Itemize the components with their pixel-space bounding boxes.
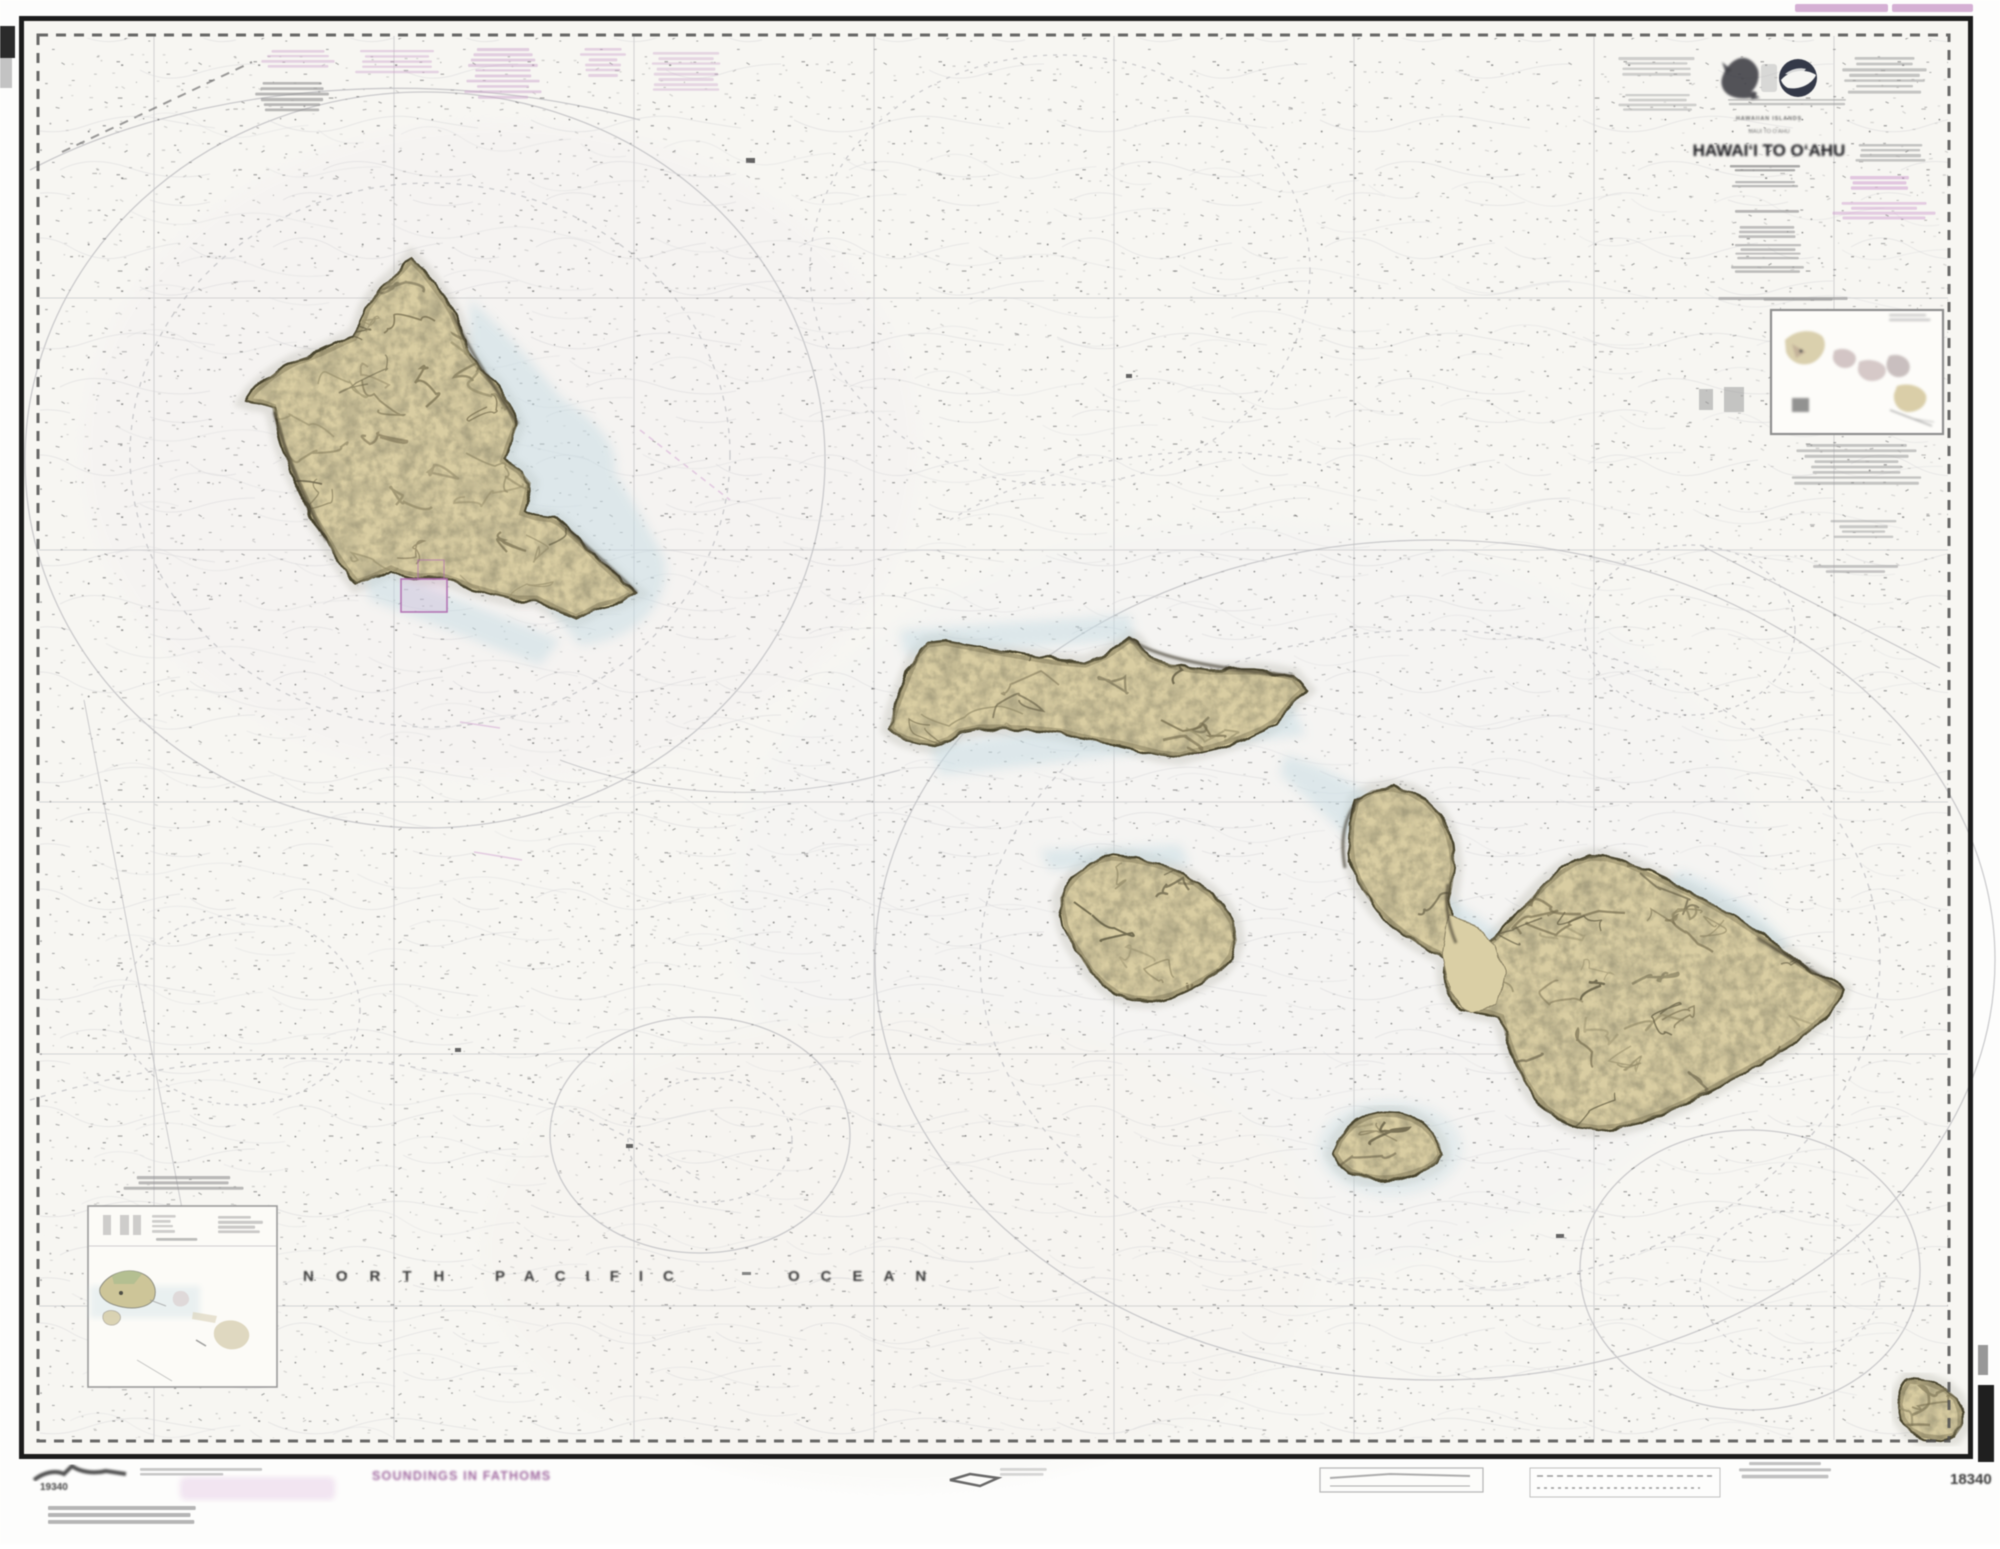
svg-text:MAUI TO O‘AHU: MAUI TO O‘AHU	[1748, 129, 1789, 135]
svg-text:HAWAIIAN ISLANDS: HAWAIIAN ISLANDS	[1736, 116, 1802, 122]
svg-text:OCEAN: OCEAN	[788, 1268, 947, 1285]
svg-text:19340: 19340	[40, 1482, 68, 1493]
svg-text:PACIFIC: PACIFIC	[495, 1268, 694, 1285]
svg-text:NORTH: NORTH	[303, 1268, 466, 1285]
svg-text:HAWAI‘I TO O‘AHU: HAWAI‘I TO O‘AHU	[1693, 141, 1846, 160]
svg-text:SOUNDINGS IN FATHOMS: SOUNDINGS IN FATHOMS	[372, 1469, 551, 1483]
svg-text:18340: 18340	[1950, 1471, 1992, 1488]
